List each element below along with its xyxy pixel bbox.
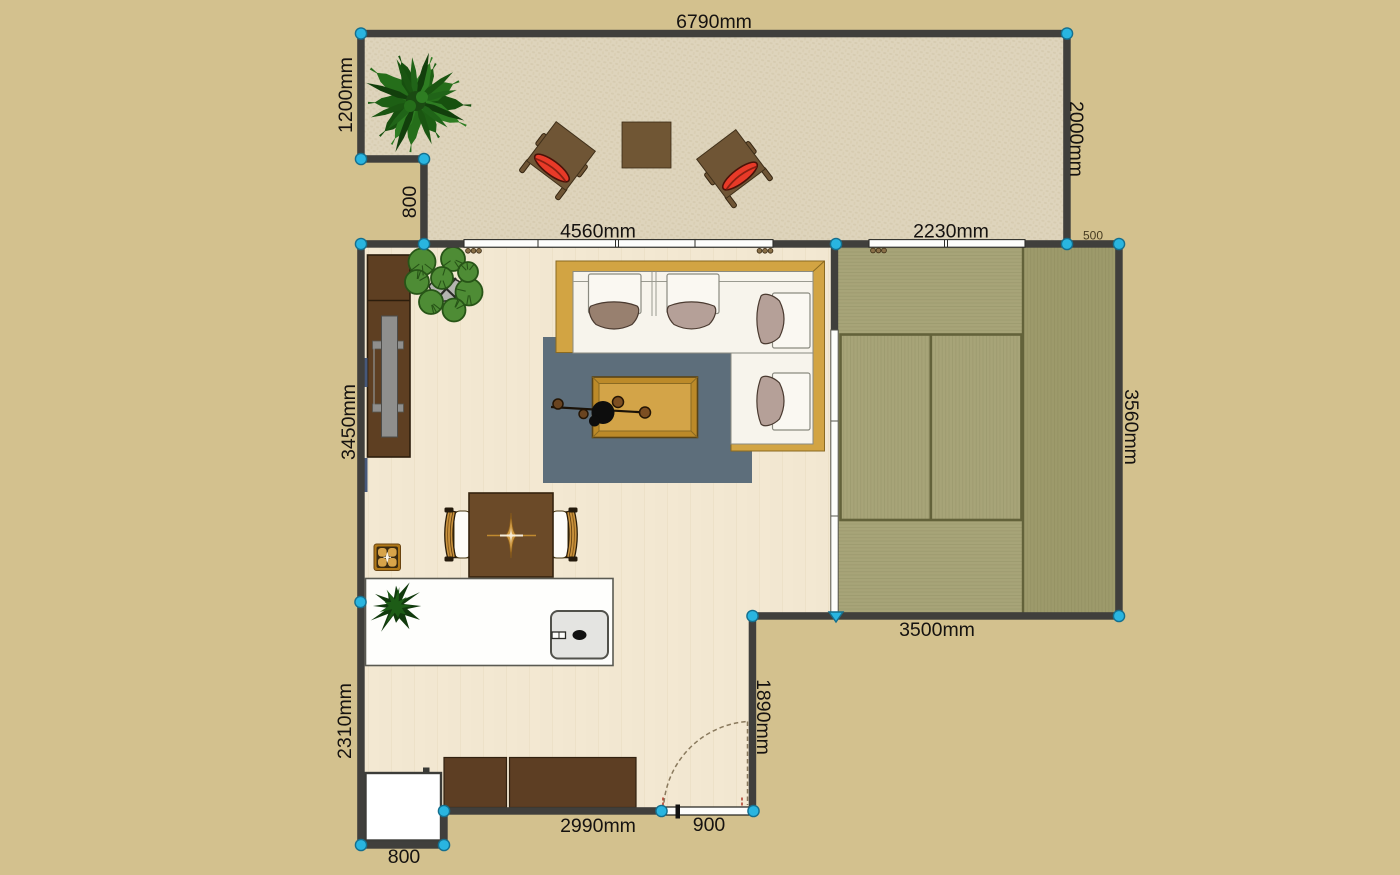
svg-text:800: 800 <box>399 186 421 219</box>
svg-text:6790mm: 6790mm <box>676 11 752 33</box>
svg-text:1200mm: 1200mm <box>335 57 357 133</box>
svg-text:3500mm: 3500mm <box>899 619 975 641</box>
svg-text:500: 500 <box>1083 229 1103 243</box>
svg-text:4560mm: 4560mm <box>560 221 636 243</box>
svg-text:1890mm: 1890mm <box>752 679 774 755</box>
svg-text:3450mm: 3450mm <box>338 384 360 460</box>
svg-text:2990mm: 2990mm <box>560 815 636 837</box>
svg-text:2230mm: 2230mm <box>913 221 989 243</box>
svg-text:800: 800 <box>388 846 421 868</box>
svg-text:3560mm: 3560mm <box>1120 389 1142 465</box>
svg-text:2310mm: 2310mm <box>334 683 356 759</box>
svg-text:900: 900 <box>693 814 726 836</box>
svg-text:2000mm: 2000mm <box>1065 101 1087 177</box>
